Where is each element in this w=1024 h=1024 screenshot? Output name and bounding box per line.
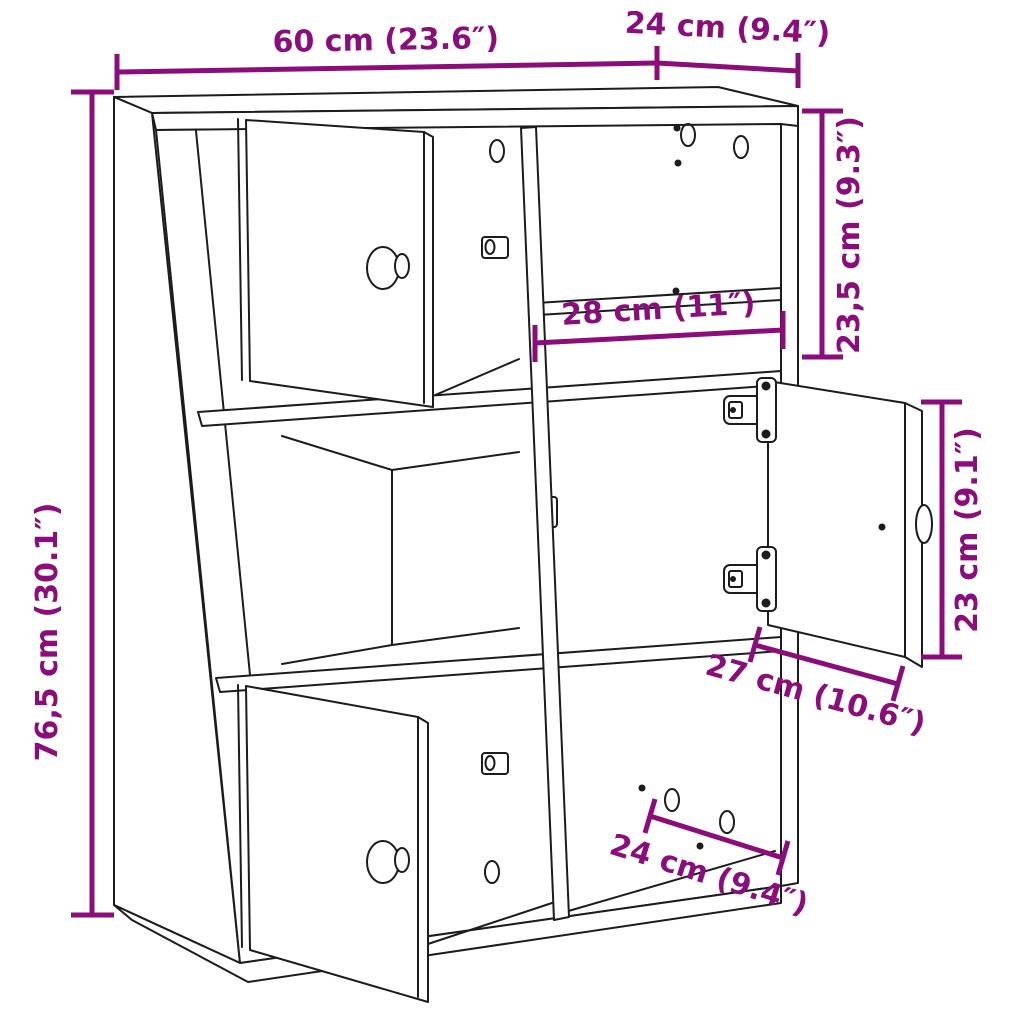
cabinet-drawing — [114, 87, 932, 1002]
door-bottom-left — [238, 685, 428, 1002]
label-top-width: 60 cm (23.6″) — [272, 21, 499, 60]
dimension-top-depth — [657, 53, 798, 88]
knob-middle-right — [916, 505, 932, 543]
bookcase-dimension-drawing: 60 cm (23.6″) 24 cm (9.4″) 23,5 cm (9.3″… — [0, 0, 1024, 1024]
dimension-overall-height — [71, 92, 114, 915]
label-overall-height: 76,5 cm (30.1″) — [30, 503, 65, 762]
door-middle-right — [768, 381, 932, 667]
dimension-diagram: 60 cm (23.6″) 24 cm (9.4″) 23,5 cm (9.3″… — [0, 0, 1024, 1024]
label-right-door-height: 23 cm (9.1″) — [950, 427, 985, 633]
label-right-upper-section: 23,5 cm (9.3″) — [832, 116, 867, 354]
label-top-depth: 24 cm (9.4″) — [624, 6, 831, 52]
door-top-left — [238, 119, 433, 407]
